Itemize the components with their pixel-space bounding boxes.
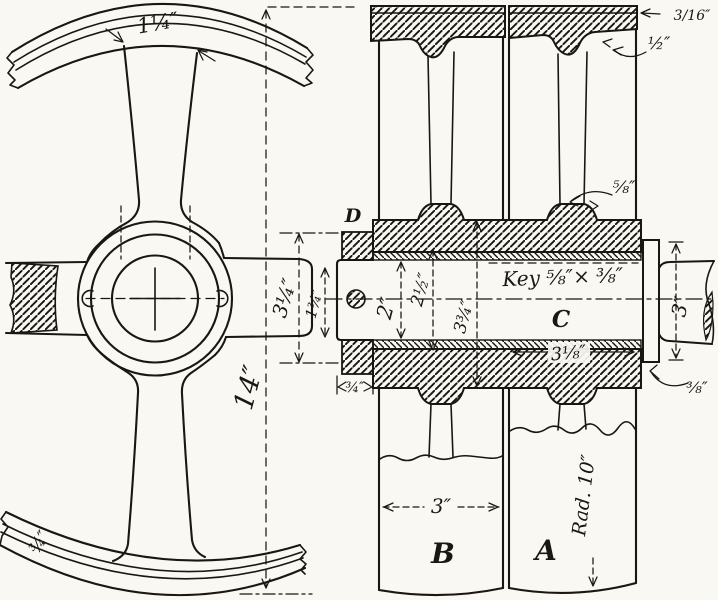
dim-rim-plate: 3/16″: [641, 8, 711, 24]
rim-break-right: [304, 48, 313, 86]
spoke-edge: [99, 46, 139, 244]
dim-label-rim-plate: 3/16″: [674, 8, 711, 24]
key-strip-bottom: [373, 340, 641, 349]
dim-collar-width: ¾″: [337, 376, 373, 396]
key-strip-top: [373, 252, 641, 260]
arm-edge: [451, 52, 454, 204]
arrowhead: [114, 32, 123, 42]
leader-line: [651, 372, 688, 386]
arm-edge: [451, 404, 453, 457]
dim-label-wheel-span: 14″: [228, 362, 269, 413]
spoke-edge: [181, 53, 219, 243]
leader-line: [571, 192, 612, 201]
collar-right: [643, 240, 659, 362]
dim-rim-radius: Rad. 10″: [568, 453, 600, 586]
dim-bore-dia: 2½″: [407, 250, 437, 350]
spoke-edge: [182, 355, 215, 557]
rim-break-left: [0, 512, 8, 545]
drawing-sheet: 1¼″ 14″ 3¼″ 1¾″ ¾″ D: [0, 0, 718, 600]
dim-spoke-width: 1¼″: [106, 8, 215, 61]
dim-label-set-off: ⅜″: [686, 378, 708, 397]
break-wave: [380, 455, 502, 460]
dim-label-hub-length: 3⅛″: [550, 341, 588, 365]
dim-label-hub-height: 3¼″: [267, 275, 302, 320]
dim-label-shaft-end: 3″: [666, 294, 694, 319]
dim-hub-height: 3¼″: [267, 233, 343, 363]
dim-set-off: ⅜″: [650, 365, 708, 397]
collar-left-bottom: [342, 340, 373, 374]
bottom-rim: [0, 512, 306, 595]
dim-label-bore-dia: 2½″: [407, 270, 435, 309]
arrowhead: [603, 39, 612, 47]
dim-face-width: 3″: [383, 494, 499, 518]
dim-label-arm-boss: ⅝″: [613, 178, 636, 198]
arm-edge: [428, 56, 431, 204]
top-spoke: [99, 46, 219, 259]
spoke-edge: [226, 336, 299, 337]
part-label-shaft-c: C: [552, 306, 571, 333]
arm-edge: [558, 54, 560, 204]
bottom-spoke: [102, 354, 215, 561]
dim-label-hub-dia: 3¾″: [450, 297, 478, 335]
part-label-pulley-b: B: [430, 537, 455, 570]
part-label-hub-d: D: [344, 205, 362, 227]
spoke-break-section: [10, 263, 58, 333]
rim-bottom-edge: [509, 583, 636, 593]
hub-band-top: [373, 204, 641, 252]
dim-label-face-width: 3″: [431, 494, 452, 518]
dim-label-collar-width: ¾″: [346, 380, 366, 396]
rim-arc-inner: [18, 46, 304, 88]
arm-edge: [429, 404, 431, 457]
shaft-edge: [659, 334, 712, 344]
dim-label-rim-radius: Rad. 10″: [568, 453, 600, 538]
dim-shaft-stub: 1¾″: [302, 268, 329, 337]
spoke-edge: [224, 258, 299, 259]
hub-band-bottom: [373, 349, 641, 404]
arm-edge: [584, 52, 587, 204]
collar-left-top: [342, 232, 373, 260]
right-spoke: [215, 243, 312, 355]
arrowhead: [613, 47, 623, 55]
arrowhead: [364, 382, 372, 391]
dim-shaft-dia: 2″: [372, 262, 405, 338]
part-label-pulley-a: A: [532, 534, 557, 567]
spoke-edge: [102, 354, 138, 561]
rim-bottom-edge: [379, 588, 503, 595]
dim-label-shaft-stub: 1¾″: [302, 287, 327, 321]
dim-label-groove-depth: ½″: [648, 34, 671, 54]
leader-line: [642, 13, 660, 14]
dim-label-spoke-width: 1¼″: [135, 8, 180, 39]
break-wave: [510, 422, 635, 435]
shaft-edge: [659, 261, 714, 268]
key-note: Key ⅝″× ⅜″: [501, 263, 624, 291]
pulley-drawing: 1¼″ 14″ 3¼″ 1¾″ ¾″ D: [0, 0, 718, 600]
